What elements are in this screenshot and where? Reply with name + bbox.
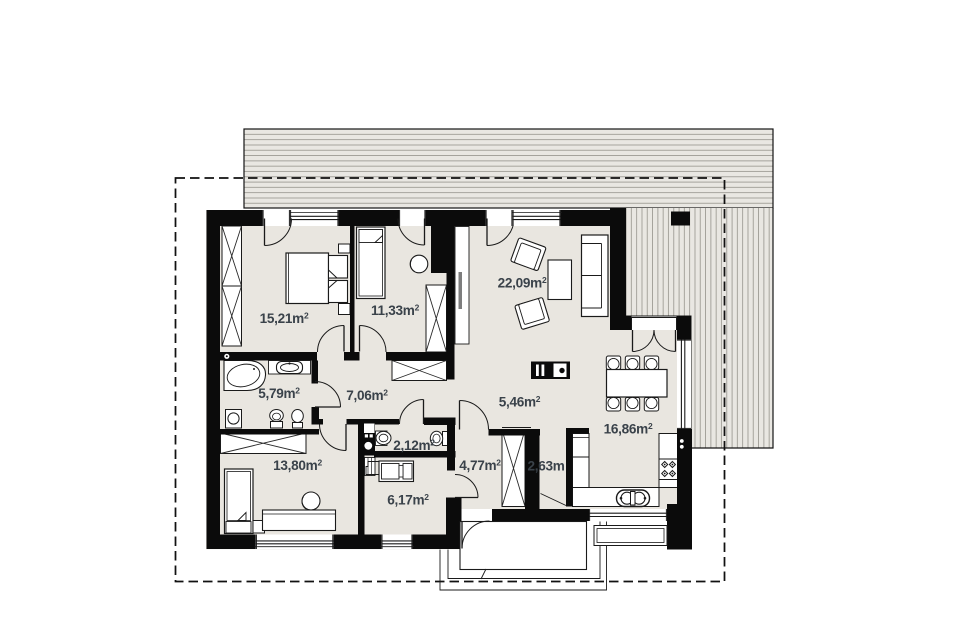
- svg-text:6,17m2: 6,17m2: [387, 492, 429, 508]
- svg-text:15,21m2: 15,21m2: [260, 311, 309, 327]
- svg-text:5,46m2: 5,46m2: [499, 394, 541, 410]
- svg-text:13,80m2: 13,80m2: [273, 458, 322, 474]
- svg-text:22,09m2: 22,09m2: [498, 275, 547, 291]
- svg-text:4,77m2: 4,77m2: [459, 458, 501, 474]
- svg-text:16,86m2: 16,86m2: [604, 421, 653, 437]
- svg-text:2,63m: 2,63m: [527, 459, 564, 474]
- svg-text:7,06m2: 7,06m2: [346, 388, 388, 404]
- svg-text:5,79m2: 5,79m2: [258, 386, 300, 402]
- svg-text:2,12m2: 2,12m2: [393, 438, 435, 454]
- svg-text:11,33m2: 11,33m2: [371, 303, 420, 319]
